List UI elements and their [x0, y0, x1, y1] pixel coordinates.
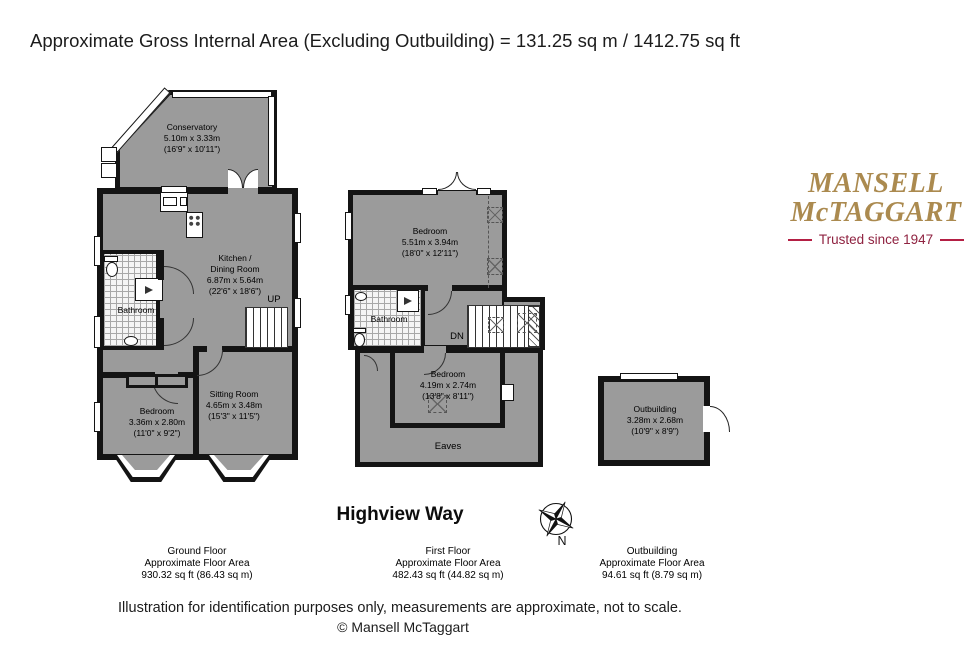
- room-dims-m: 4.19m x 2.74m: [390, 380, 506, 391]
- hob-icon: [186, 212, 203, 238]
- page-title: Approximate Gross Internal Area (Excludi…: [30, 30, 740, 52]
- wardrobe-icon: [487, 207, 503, 223]
- floor-area-value: 94.61 sq ft (8.79 sq m): [572, 570, 732, 582]
- eaves-storage-icon: [517, 313, 537, 333]
- window: [94, 236, 101, 266]
- outbuilding-label: Outbuilding 3.28m x 2.68m (10'9" x 8'9"): [613, 404, 697, 437]
- shower-spray-icon: [145, 286, 153, 294]
- room-dims-ft: (13'8" x 8'11"): [390, 391, 506, 402]
- room-name: Conservatory: [132, 122, 252, 133]
- bedroom-main-label: Bedroom 5.51m x 3.94m (18'0" x 12'11"): [370, 226, 490, 259]
- door-arc: [438, 172, 457, 190]
- room-dims-m: 5.10m x 3.33m: [132, 133, 252, 144]
- room-dims-m: 5.51m x 3.94m: [370, 237, 490, 248]
- conservatory-door-leaf: [101, 163, 117, 178]
- sink-unit: [163, 197, 177, 206]
- bedroom-rear-label: Bedroom 4.19m x 2.74m (13'8" x 8'11"): [390, 369, 506, 402]
- floor-area-caption: Approximate Floor Area: [117, 558, 277, 570]
- window: [477, 188, 491, 195]
- door-arc: [710, 406, 730, 432]
- wardrobe-icon: [487, 258, 503, 275]
- copyright-text: © Mansell McTaggart: [253, 619, 553, 635]
- room-dims-m: 6.87m x 5.64m: [175, 275, 295, 286]
- toilet-icon: [354, 333, 365, 347]
- window: [294, 213, 301, 243]
- room-name: Sitting Room: [184, 389, 284, 400]
- floorplan-page: Approximate Gross Internal Area (Excludi…: [0, 0, 980, 653]
- bathroom-label: Bathroom: [357, 314, 421, 325]
- shower-icon: [397, 290, 419, 312]
- shower-spray-icon: [404, 297, 412, 305]
- window: [94, 316, 101, 348]
- eaves-label: Eaves: [418, 441, 478, 453]
- floor-name: First Floor: [368, 546, 528, 558]
- window: [345, 212, 352, 240]
- floor-area-caption: Approximate Floor Area: [368, 558, 528, 570]
- room-name: Bedroom: [370, 226, 490, 237]
- room-dims-ft: (18'0" x 12'11"): [370, 248, 490, 259]
- logo-name-line1: MANSELL: [782, 170, 970, 199]
- room-dims-ft: (22'6" x 18'6"): [175, 286, 295, 297]
- window: [94, 402, 101, 432]
- staircase-up: [245, 307, 288, 348]
- interior-wall: [452, 285, 504, 291]
- logo-name-line2: McTAGGART: [782, 199, 970, 228]
- floor-area-caption: Approximate Floor Area: [572, 558, 732, 570]
- sink-icon: [355, 292, 367, 301]
- toilet-icon: [106, 262, 118, 277]
- window: [422, 188, 437, 195]
- window: [294, 298, 301, 328]
- ground-floor-area-label: Ground Floor Approximate Floor Area 930.…: [117, 546, 277, 583]
- logo-tagline: Trusted since 1947: [782, 232, 970, 247]
- conservatory-top-window: [172, 91, 272, 98]
- outbuilding-area-label: Outbuilding Approximate Floor Area 94.61…: [572, 546, 732, 583]
- compass-icon: [536, 499, 576, 539]
- bedroom-label: Bedroom 3.36m x 2.80m (11'0" x 9'2"): [107, 406, 207, 439]
- room-name: Bedroom: [107, 406, 207, 417]
- floor-name: Outbuilding: [572, 546, 732, 558]
- floor-area-value: 930.32 sq ft (86.43 sq m): [117, 570, 277, 582]
- property-name: Highview Way: [300, 504, 500, 526]
- tagline-rule-right: [940, 239, 964, 241]
- counter-unit: [180, 197, 187, 206]
- stairs-down-label: DN: [447, 331, 467, 343]
- room-name: Kitchen /: [175, 253, 295, 264]
- door-arc: [457, 172, 476, 190]
- conservatory-right-window: [268, 96, 275, 186]
- tagline-rule-left: [788, 239, 812, 241]
- room-name: Dining Room: [175, 264, 295, 275]
- agency-logo: MANSELL McTAGGART Trusted since 1947: [782, 170, 970, 247]
- floor-area-value: 482.43 sq ft (44.82 sq m): [368, 570, 528, 582]
- conservatory-label: Conservatory 5.10m x 3.33m (16'9" x 10'1…: [132, 122, 252, 155]
- kitchen-dining-label: Kitchen / Dining Room 6.87m x 5.64m (22'…: [175, 253, 295, 297]
- disclaimer-text: Illustration for identification purposes…: [100, 600, 700, 616]
- shower-icon: [135, 278, 163, 301]
- room-dims-ft: (16'9" x 10'11"): [132, 144, 252, 155]
- compass-north-label: N: [552, 534, 572, 548]
- room-dims-m: 3.28m x 2.68m: [613, 415, 697, 426]
- sink-icon: [124, 336, 138, 346]
- bathroom-label: Bathroom: [106, 305, 166, 316]
- tagline-text: Trusted since 1947: [819, 232, 933, 247]
- eaves-storage-icon: [488, 317, 504, 333]
- window: [620, 373, 678, 380]
- room-dims-ft: (11'0" x 9'2"): [107, 428, 207, 439]
- first-floor-area-label: First Floor Approximate Floor Area 482.4…: [368, 546, 528, 583]
- room-name: Bedroom: [390, 369, 506, 380]
- door-opening: [438, 191, 476, 196]
- conservatory-door-leaf: [101, 147, 117, 162]
- closet-divider: [155, 374, 158, 388]
- floor-name: Ground Floor: [117, 546, 277, 558]
- room-dims-m: 3.36m x 2.80m: [107, 417, 207, 428]
- room-name: Outbuilding: [613, 404, 697, 415]
- room-dims-ft: (10'9" x 8'9"): [613, 426, 697, 437]
